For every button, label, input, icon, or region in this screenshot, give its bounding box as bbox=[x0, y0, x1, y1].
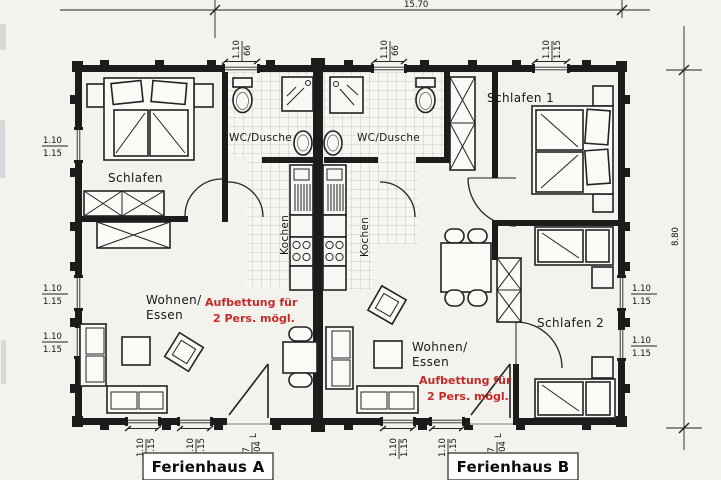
svg-text:1.10: 1.10 bbox=[43, 332, 62, 342]
window-bottom-b1 bbox=[380, 417, 416, 426]
sofa-left-b bbox=[326, 327, 353, 389]
house-b-label: Ferienhaus B bbox=[457, 458, 570, 476]
dim-window-bottom-b1: 1.10 1.15 bbox=[389, 438, 410, 459]
shower-a bbox=[282, 77, 313, 111]
window-left-2 bbox=[74, 275, 83, 311]
total-width-label: 15.70 bbox=[404, 0, 428, 10]
stove-a bbox=[290, 237, 313, 266]
label-wohnen-a-1: Wohnen/ bbox=[146, 293, 202, 307]
svg-text:1.15: 1.15 bbox=[43, 345, 62, 355]
svg-text:1.10: 1.10 bbox=[389, 438, 399, 457]
sofa-bottom-b bbox=[357, 386, 418, 413]
label-wohnen-a-2: Essen bbox=[146, 308, 183, 322]
chair-diamond-b bbox=[368, 286, 406, 324]
wardrobe-bedroom-a bbox=[84, 191, 164, 216]
note-aufbettung-a-1: Aufbettung für bbox=[205, 296, 298, 309]
floor-plan-page: 15.70 8.80 bbox=[0, 0, 721, 480]
window-bottom-b2 bbox=[429, 417, 465, 426]
svg-text:L: L bbox=[249, 433, 259, 438]
dim-window-right-1: 1.10 1.15 bbox=[631, 284, 657, 307]
wardrobe-hall-b bbox=[450, 77, 475, 170]
nightstand-s2-bottom bbox=[592, 357, 613, 378]
dining-set-b bbox=[441, 229, 491, 306]
table-square-a bbox=[122, 337, 150, 365]
dim-window-right-2: 1.10 1.15 bbox=[631, 336, 657, 359]
note-aufbettung-a-2: 2 Pers. mögl. bbox=[213, 312, 295, 325]
window-bottom-a2 bbox=[177, 417, 213, 426]
toilet-a bbox=[233, 78, 252, 113]
dim-wc-window-a: 1.10 66 bbox=[232, 40, 253, 61]
label-schlafen-1: Schlafen 1 bbox=[487, 91, 554, 105]
label-wc-a: WC/Dusche bbox=[229, 132, 292, 144]
svg-text:66: 66 bbox=[391, 45, 401, 56]
svg-text:1.10: 1.10 bbox=[380, 40, 390, 59]
kitchen-a bbox=[290, 165, 313, 290]
dim-wc-window-b: 1.10 66 bbox=[380, 40, 401, 61]
svg-text:1.15: 1.15 bbox=[632, 349, 651, 359]
window-left-1 bbox=[74, 127, 83, 163]
svg-text:1.15: 1.15 bbox=[632, 297, 651, 307]
svg-text:66: 66 bbox=[243, 45, 253, 56]
svg-text:1.10: 1.10 bbox=[632, 336, 651, 346]
sink-a bbox=[294, 131, 312, 155]
label-kochen-a: Kochen bbox=[279, 215, 291, 255]
house-labels: Ferienhaus A Ferienhaus B bbox=[143, 453, 578, 480]
wardrobe-living-a bbox=[97, 222, 170, 248]
window-top-wc-b bbox=[371, 64, 407, 73]
svg-text:1.10: 1.10 bbox=[632, 284, 651, 294]
note-aufbettung-b-2: 2 Pers. mögl. bbox=[427, 390, 509, 403]
svg-text:1.10: 1.10 bbox=[43, 284, 62, 294]
bed-single-bottom bbox=[535, 379, 615, 418]
entrance-door-a bbox=[227, 364, 270, 425]
floor-plan-drawing: 15.70 8.80 bbox=[0, 0, 721, 480]
door-arc-schlafen1 bbox=[468, 178, 516, 226]
sofa-bottom-a bbox=[107, 386, 167, 413]
wardrobe-schlafen2 bbox=[497, 258, 521, 322]
house-a-label: Ferienhaus A bbox=[152, 458, 265, 476]
dim-window-left-1: 1.10 1.15 bbox=[42, 136, 68, 159]
toilet-b bbox=[416, 78, 435, 113]
dimension-total-height: 8.80 bbox=[666, 26, 702, 450]
dimension-total-width: 15.70 bbox=[60, 0, 650, 38]
scan-artifacts bbox=[0, 24, 6, 384]
kitchen-b bbox=[323, 165, 346, 290]
bed-double-a bbox=[87, 78, 213, 160]
window-right-2 bbox=[617, 330, 626, 361]
window-top-wc-a bbox=[222, 64, 260, 73]
svg-text:1.15: 1.15 bbox=[43, 297, 62, 307]
svg-text:1.10: 1.10 bbox=[232, 40, 242, 59]
window-top-schlafen1 bbox=[532, 64, 570, 73]
label-schlafen-a: Schlafen bbox=[108, 171, 163, 185]
nightstand-s2-top bbox=[592, 267, 613, 288]
svg-text:1.15: 1.15 bbox=[400, 438, 410, 457]
dim-window-schlafen1: 1.10 1.15 bbox=[542, 40, 563, 61]
bed-single-top bbox=[535, 227, 613, 265]
sink-b bbox=[324, 131, 342, 155]
svg-text:L: L bbox=[494, 433, 504, 438]
stove-b bbox=[323, 237, 346, 266]
chair-diamond-a bbox=[165, 333, 204, 372]
dim-window-left-2: 1.10 1.15 bbox=[42, 284, 68, 307]
sofa-left-a bbox=[80, 324, 106, 386]
label-wc-b: WC/Dusche bbox=[357, 132, 420, 144]
window-bottom-a1 bbox=[125, 417, 161, 426]
note-aufbettung-b-1: Aufbettung für bbox=[419, 374, 512, 387]
window-right-1 bbox=[617, 275, 626, 311]
label-wohnen-b-2: Essen bbox=[412, 355, 449, 369]
door-arc-schlafen-a bbox=[185, 179, 222, 216]
svg-text:1.15: 1.15 bbox=[43, 149, 62, 159]
dining-set-a bbox=[283, 327, 317, 387]
total-height-label: 8.80 bbox=[671, 227, 681, 246]
svg-text:1.10: 1.10 bbox=[542, 40, 552, 59]
dim-window-left-3: 1.10 1.15 bbox=[42, 332, 68, 355]
svg-text:1.15: 1.15 bbox=[553, 40, 563, 59]
svg-text:1.10: 1.10 bbox=[43, 136, 62, 146]
table-square-b bbox=[374, 341, 402, 368]
label-wohnen-b-1: Wohnen/ bbox=[412, 340, 468, 354]
label-kochen-b: Kochen bbox=[359, 217, 371, 257]
label-schlafen-2: Schlafen 2 bbox=[537, 316, 604, 330]
svg-text:1.10: 1.10 bbox=[438, 438, 448, 457]
shower-b bbox=[330, 77, 363, 113]
